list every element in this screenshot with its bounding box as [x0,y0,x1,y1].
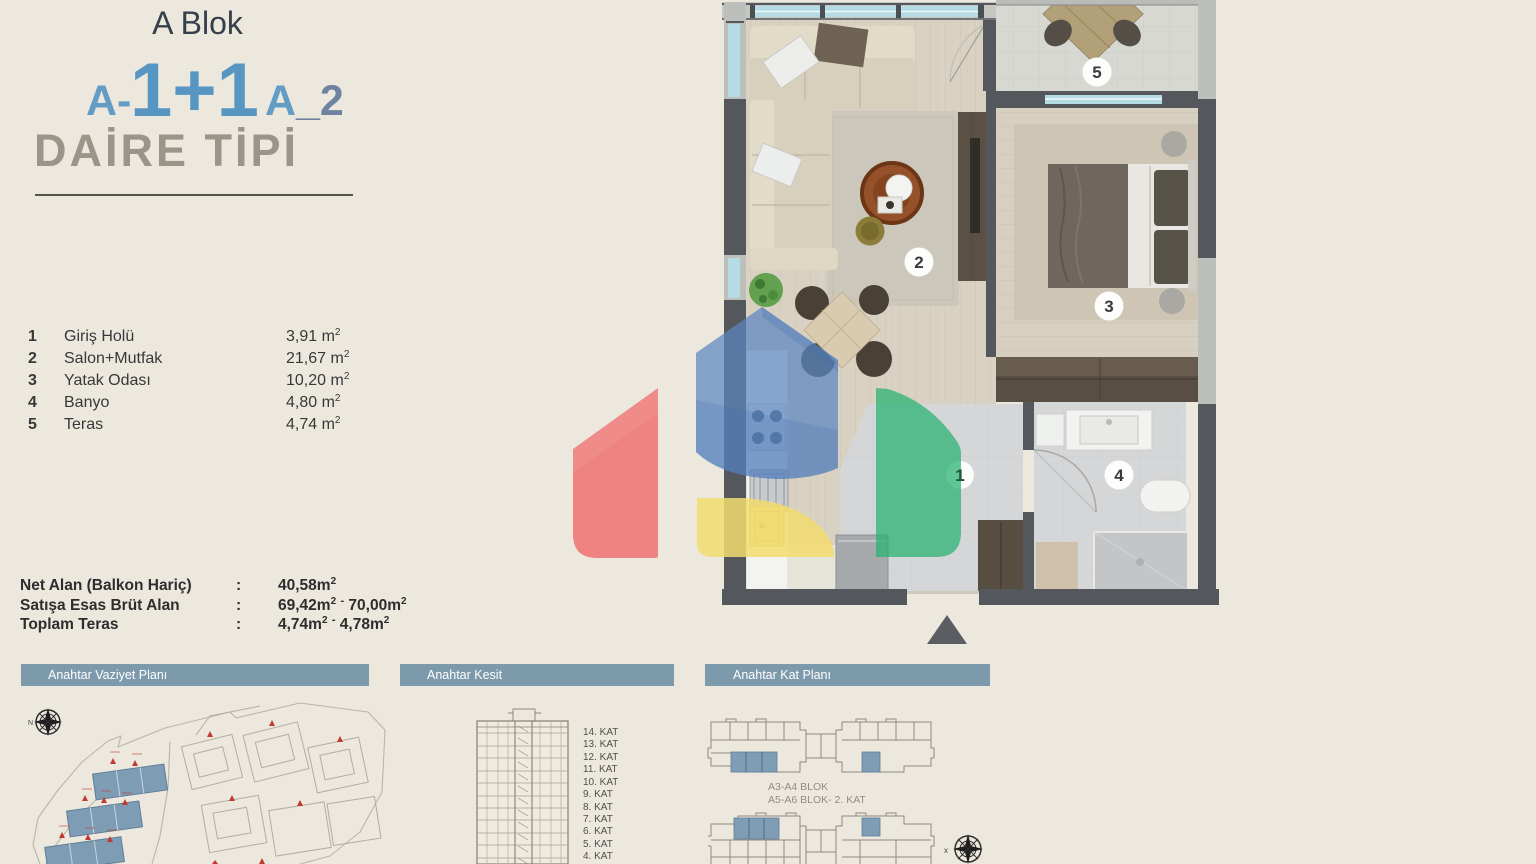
svg-text:A5-A6 BLOK- 2. KAT: A5-A6 BLOK- 2. KAT [768,794,866,806]
svg-text:6. KAT: 6. KAT [583,826,613,837]
svg-text:5. KAT: 5. KAT [583,839,613,850]
svg-text:4. KAT: 4. KAT [583,851,613,862]
svg-text:2: 2 [914,253,923,272]
svg-text:N: N [28,720,33,727]
svg-text:8. KAT: 8. KAT [583,802,613,813]
svg-text:A3-A4 BLOK: A3-A4 BLOK [768,781,828,793]
svg-text:3: 3 [1104,297,1113,316]
svg-text:10. KAT: 10. KAT [583,777,618,788]
svg-text:13. KAT: 13. KAT [583,739,618,750]
svg-text:12. KAT: 12. KAT [583,752,618,763]
svg-text:x: x [944,846,948,855]
svg-text:9. KAT: 9. KAT [583,789,613,800]
svg-text:11. KAT: 11. KAT [583,764,618,775]
svg-text:5: 5 [1092,63,1101,82]
svg-text:7. KAT: 7. KAT [583,814,613,825]
svg-text:1: 1 [955,466,964,485]
svg-text:14. KAT: 14. KAT [583,727,618,738]
svg-text:4: 4 [1114,466,1124,485]
